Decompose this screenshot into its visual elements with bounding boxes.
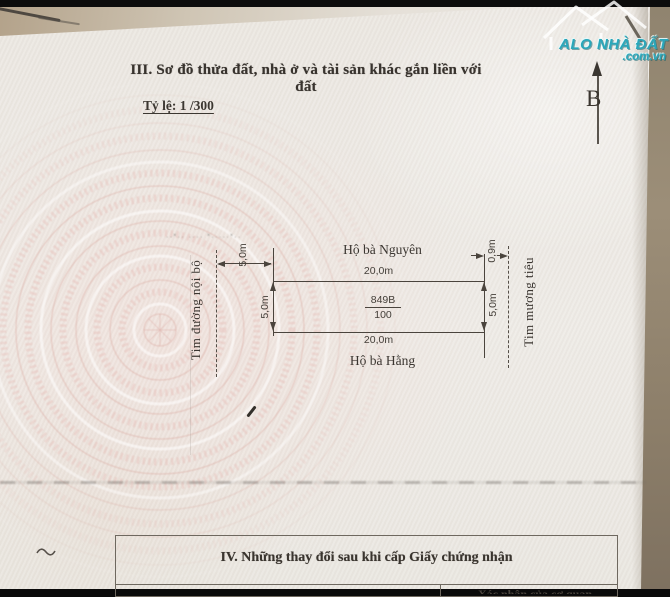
road-centerline-label: Tim đường nội bộ [188,260,204,360]
section4-column-divider [440,584,441,596]
section4-row-divider [116,584,617,585]
depth-left-label: 5,0m [259,295,271,318]
ditch-centerline-dashed [508,246,509,368]
certificate-photo: III. Sơ đồ thửa đất, nhà ở và tài sản kh… [0,0,670,597]
dimension-bottom-width: 20,0m [273,334,484,346]
section3-title: III. Sơ đồ thửa đất, nhà ở và tài sản kh… [122,62,490,96]
brand-domain-watermark: .com.vn [623,51,666,63]
north-label: B [586,86,601,112]
arrowhead-icon [264,261,272,267]
arrowhead-icon [481,282,487,291]
parcel-area: 100 [343,309,423,321]
arrowhead-icon [217,261,225,267]
horizontal-crease [0,481,646,484]
crease-squiggle [36,544,56,562]
dimension-top-width: 20,0m [273,265,484,277]
arrowhead-icon [481,322,487,331]
plot-bottom-edge [273,332,484,333]
neighbor-north-label: Hộ bà Nguyên [325,242,440,258]
parcel-callout: 849B 100 [343,294,423,321]
section4-partial-header: Xác nhận của cơ quan [454,587,616,594]
north-arrow-head-icon [592,61,602,76]
plot-top-edge [273,281,484,282]
depth-right-label: 5,0m [487,293,499,316]
arrowhead-icon [476,253,484,259]
road-centerline-dashed [216,250,217,377]
offset-left-label: 5,0m [237,243,249,266]
neighbor-south-label: Hộ bà Hằng [325,353,440,369]
arrowhead-icon [500,253,508,259]
section4-box: IV. Những thay đổi sau khi cấp Giấy chứn… [115,535,618,597]
ditch-centerline-label: Tim mương tiêu [521,257,537,347]
arrowhead-icon [270,322,276,331]
section4-title: IV. Những thay đổi sau khi cấp Giấy chứn… [116,550,617,566]
scale-label: Tỷ lệ: 1 /300 [143,98,214,114]
parcel-number: 849B [343,294,423,306]
fraction-bar [365,307,401,308]
offset-right-label: 0,9m [486,239,498,262]
arrowhead-icon [270,282,276,291]
faint-serial-text: ··˟·· ···· ˟·····˟·· [166,234,296,241]
